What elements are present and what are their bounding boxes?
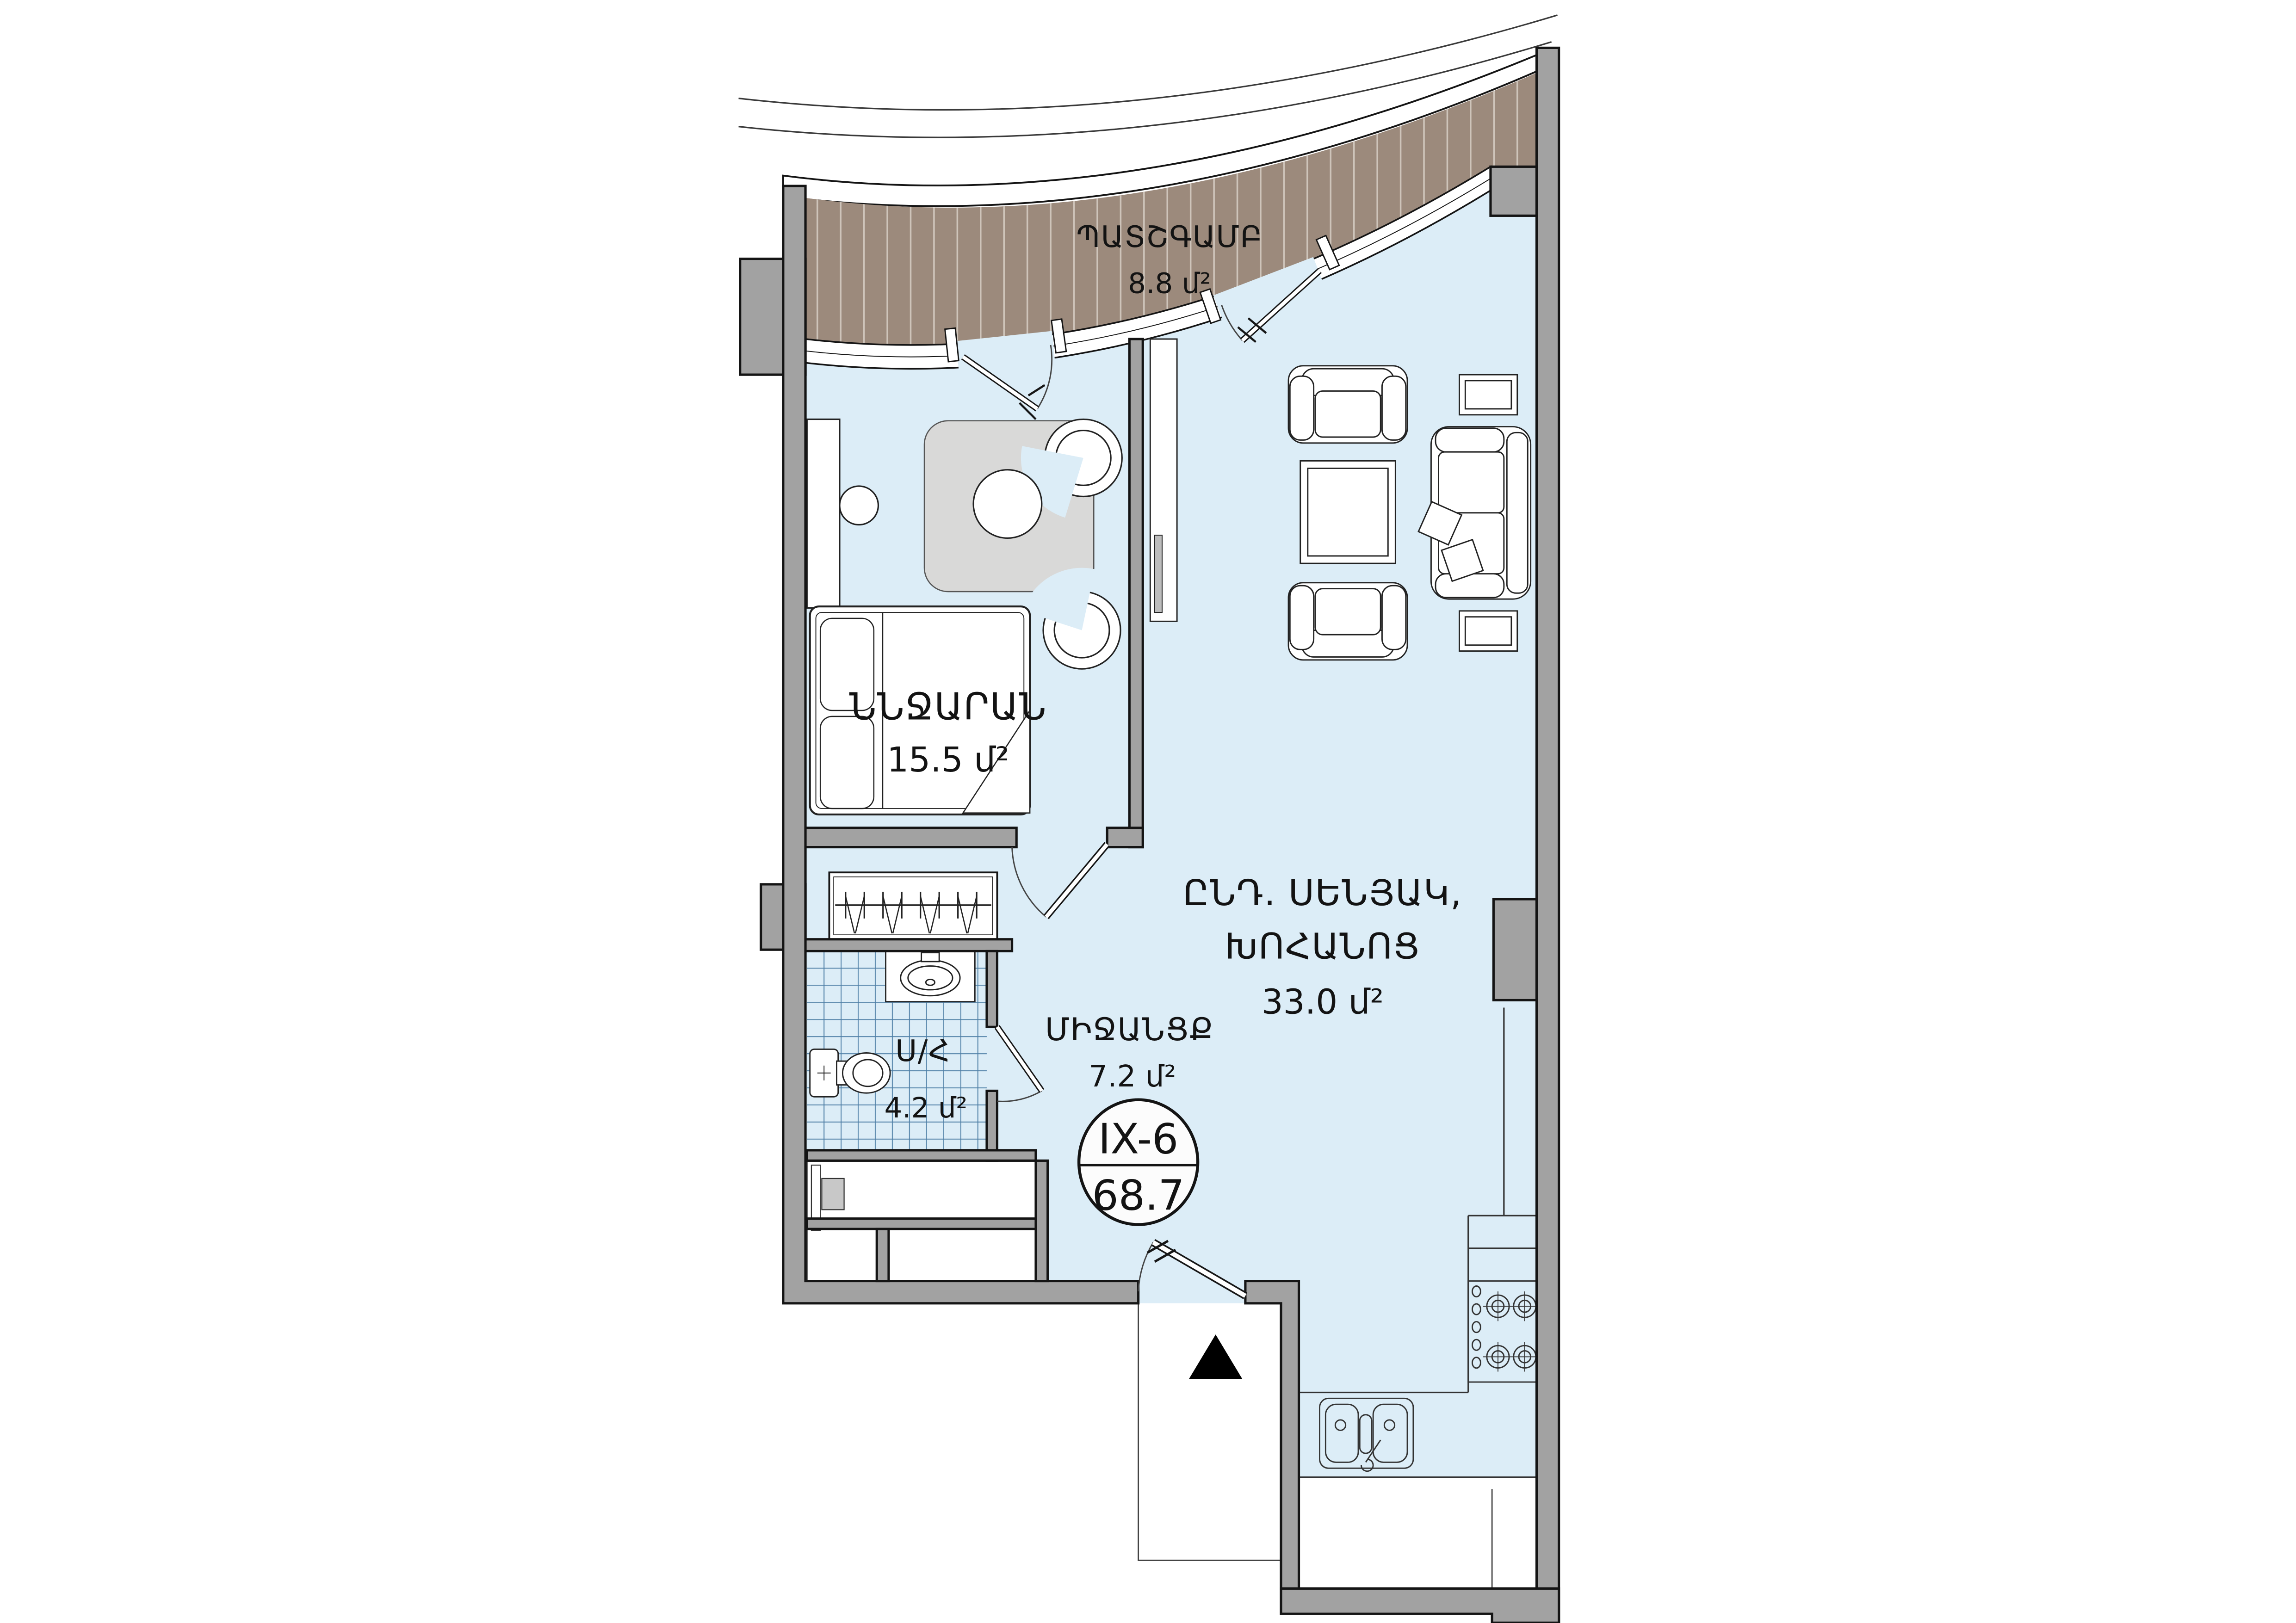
media-unit-icon (1150, 339, 1177, 621)
living-area: 33.0 մ² (1262, 982, 1384, 1022)
floor-plan-canvas: ՊԱՏՇԳԱՄԲ 8.8 մ² ՆՆՋԱՐԱՆ 15.5 մ² ԸՆԴ. ՍԵՆ… (0, 0, 2296, 1623)
corridor-area: 7.2 մ² (1089, 1059, 1176, 1094)
wardrobe-icon (829, 872, 997, 939)
lower-right-room (1299, 1477, 1537, 1589)
balcony-label: ՊԱՏՇԳԱՄԲ (1077, 220, 1263, 254)
vanity-sink-icon (886, 951, 975, 1001)
side-table-icon (1459, 611, 1517, 651)
wall-storage-mid (807, 1219, 1047, 1229)
round-table-icon (973, 470, 1042, 538)
unit-badge: IX-6 68.7 (1079, 1100, 1198, 1225)
wall-right (1537, 48, 1559, 1623)
sofa-icon (1418, 427, 1531, 599)
armchair-icon (1288, 583, 1407, 660)
side-table-icon (1459, 375, 1517, 415)
wall-partition-bedroom-living (1129, 339, 1143, 847)
wall-bedroom-door-stub (1107, 828, 1143, 847)
storage-room (807, 1229, 877, 1281)
bathroom-area: 4.2 մ² (884, 1092, 967, 1124)
desk-icon (807, 419, 840, 608)
corridor-label: ՄԻՋԱՆՑՔ (1045, 1011, 1214, 1048)
washing-machine-icon (822, 1179, 844, 1210)
wall-storage-divider (877, 1229, 889, 1281)
floor-plan-page: ՊԱՏՇԳԱՄԲ 8.8 մ² ՆՆՋԱՐԱՆ 15.5 մ² ԸՆԴ. ՍԵՆ… (0, 0, 2296, 1623)
storage-room (889, 1229, 1036, 1281)
bedroom-area: 15.5 մ² (887, 740, 1009, 780)
living-label-line2: ԽՈՀԱՆՈՑ (1225, 926, 1421, 968)
stool-icon (840, 486, 879, 525)
unit-area: 68.7 (1092, 1172, 1184, 1220)
armchair-icon (1288, 366, 1407, 443)
wall-storage-right (1036, 1160, 1048, 1281)
wall-bathroom-right-upper (987, 951, 997, 1027)
wall-bathroom-top (805, 939, 1012, 951)
unit-number: IX-6 (1098, 1115, 1178, 1163)
wall-bathroom-bottom (807, 1150, 1036, 1160)
wall-pillar-top-right (1491, 167, 1537, 216)
living-label-line1: ԸՆԴ. ՍԵՆՅԱԿ, (1183, 872, 1462, 914)
bathroom-label: Ս/Հ (895, 1034, 950, 1068)
balcony-area: 8.8 մ² (1128, 267, 1211, 300)
pillow-icon (820, 716, 874, 808)
coffee-table-icon (1300, 461, 1396, 563)
wall-pillar-mid-right (1493, 899, 1536, 1000)
bedroom-label: ՆՆՋԱՐԱՆ (849, 685, 1047, 728)
wall-bedroom-corridor (805, 828, 1016, 847)
